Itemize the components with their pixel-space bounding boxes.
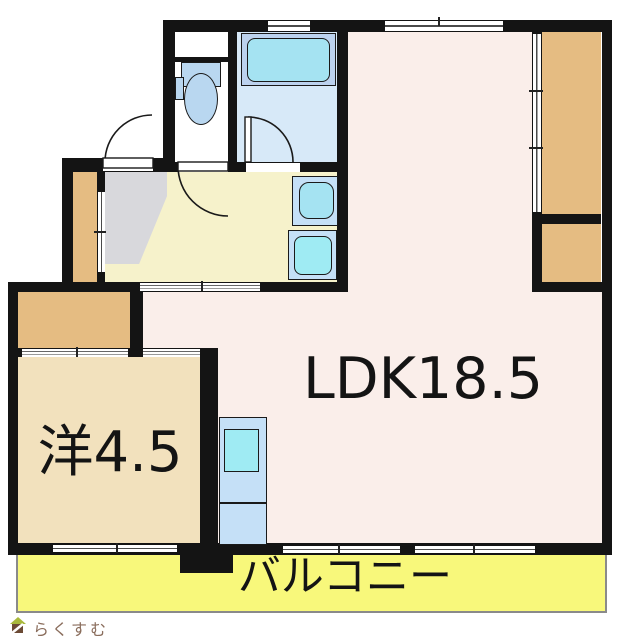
ldk-label: LDK18.5 [278, 344, 568, 414]
window-tick [438, 17, 440, 26]
window-tick [94, 231, 106, 233]
western-room-label: 洋4.5 [25, 418, 195, 488]
window-tick [76, 347, 78, 357]
logo-text: らくすむ [33, 616, 109, 640]
storage-lower-right [542, 224, 601, 282]
sliding-door [22, 349, 128, 357]
storage-upper-right [542, 32, 601, 214]
window [53, 545, 177, 552]
wall [532, 214, 601, 224]
door-opening [246, 163, 300, 172]
shoe-closet [73, 170, 97, 283]
balcony-label: バルコニー [215, 552, 475, 602]
toilet-bowl [184, 73, 218, 125]
window-tick [529, 147, 543, 149]
washing-machine [294, 236, 332, 275]
washbasin-bowl [299, 182, 334, 219]
kitchen-counter-divider [219, 502, 267, 504]
door-opening [178, 163, 228, 172]
ldk-floor-upper [348, 32, 532, 292]
bathtub [247, 38, 330, 82]
window-tick [116, 543, 118, 553]
wall [163, 20, 175, 172]
wall [602, 20, 612, 555]
floorplan: LDK18.5 洋4.5 バルコニー らくすむ [0, 0, 640, 640]
wall [228, 32, 237, 172]
closet-western-room [18, 292, 130, 348]
sliding-door [533, 34, 541, 212]
logo: らくすむ [9, 615, 209, 637]
door-opening [103, 159, 153, 171]
sliding-door [140, 283, 260, 291]
toilet-paper-holder [175, 77, 184, 100]
wall [8, 282, 18, 555]
wall [532, 282, 602, 292]
wall [62, 158, 73, 292]
window-tick [529, 90, 543, 92]
kitchen-sink [224, 429, 259, 472]
house-icon [9, 616, 27, 634]
window [268, 21, 310, 31]
wall [200, 348, 218, 555]
window [385, 21, 503, 31]
wall [337, 20, 348, 292]
window-tick [201, 281, 203, 291]
sliding-door [143, 349, 200, 357]
